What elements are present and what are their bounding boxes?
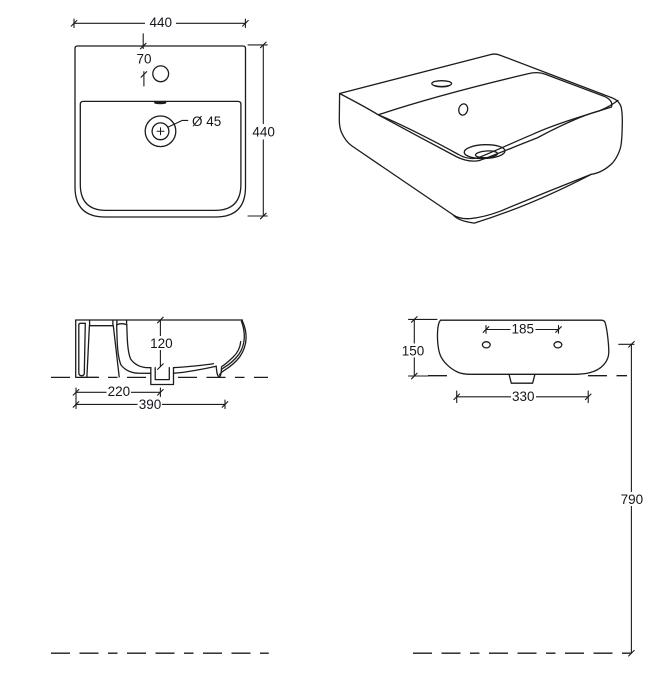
svg-text:440: 440 — [150, 15, 173, 30]
svg-text:120: 120 — [150, 336, 173, 351]
svg-text:390: 390 — [139, 397, 162, 412]
svg-text:185: 185 — [512, 322, 535, 337]
svg-text:150: 150 — [402, 343, 425, 358]
svg-text:440: 440 — [252, 125, 275, 140]
svg-text:Ø 45: Ø 45 — [192, 114, 221, 129]
svg-text:330: 330 — [512, 389, 535, 404]
svg-text:220: 220 — [108, 384, 131, 399]
svg-text:70: 70 — [136, 51, 151, 66]
svg-text:790: 790 — [621, 492, 644, 507]
